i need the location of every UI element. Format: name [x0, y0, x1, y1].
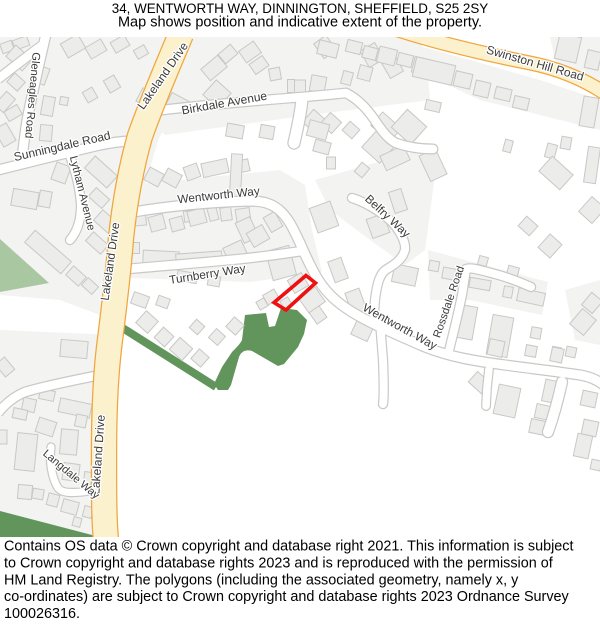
svg-text:Contains OS data © Crown copyr: Contains OS data © Crown copyright and d…	[4, 539, 573, 555]
svg-text:to Crown copyright and databas: to Crown copyright and database rights 2…	[4, 555, 554, 571]
svg-text:HM Land Registry. The polygons: HM Land Registry. The polygons (includin…	[4, 572, 519, 588]
svg-text:Map shows position and indicat: Map shows position and indicative extent…	[118, 15, 482, 31]
svg-text:100026316.: 100026316.	[4, 606, 80, 622]
svg-text:co-ordinates) are subject to C: co-ordinates) are subject to Crown copyr…	[4, 589, 570, 605]
